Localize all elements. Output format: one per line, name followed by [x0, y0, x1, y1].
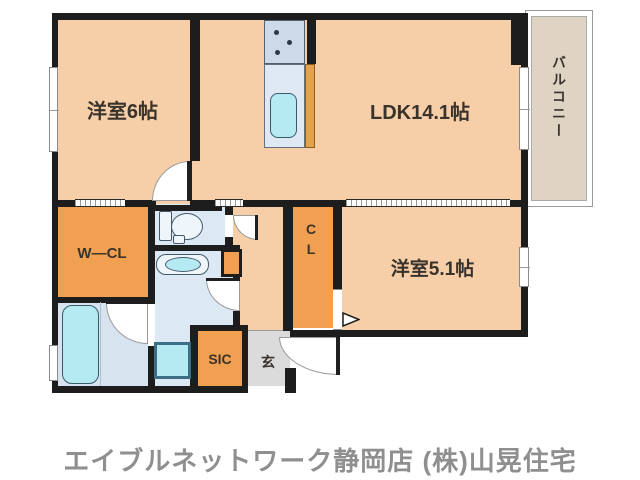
agency-caption: エイブルネットワーク静岡店 (株)山晃住宅 [0, 441, 640, 478]
door-swing-triangle [342, 312, 360, 327]
door-leaf [106, 301, 148, 304]
door-leaf [206, 278, 240, 281]
wall [190, 20, 200, 161]
sliding-door-corridor [215, 199, 243, 207]
wall [283, 200, 293, 331]
stove-burner-dot [274, 30, 279, 35]
wall [52, 386, 248, 393]
closet-door-opening [333, 289, 342, 330]
door-leaf [255, 215, 258, 240]
wall [190, 325, 248, 331]
wall [243, 200, 346, 207]
window [519, 67, 529, 150]
vanity-basin [165, 257, 201, 272]
kitchen-sink [270, 93, 297, 138]
wall [510, 200, 528, 207]
label-bedroom2: 洋室5.1帖 [345, 254, 520, 281]
bathroom-door-opening [148, 304, 155, 346]
label-walk-in-closet: W—CL [58, 245, 146, 262]
label-bedroom1: 洋室6帖 [55, 95, 190, 124]
wall [148, 200, 155, 304]
label-closet: CL [303, 221, 319, 261]
wall [511, 13, 528, 65]
door-leaf [336, 337, 340, 375]
toilet-door-opening [225, 215, 233, 237]
window [49, 345, 58, 381]
hall-storage [221, 249, 242, 277]
label-entrance: 玄 [248, 352, 288, 372]
floorplan: 洋室6帖 LDK14.1帖 洋室5.1帖 バルコニー W—CL CL SIC 玄… [0, 0, 640, 480]
washing-machine-pan [154, 342, 191, 379]
door-leaf [187, 161, 192, 201]
wall [307, 20, 316, 64]
sliding-door-wcl [75, 199, 125, 207]
sliding-door-bedroom2 [346, 199, 510, 207]
wall [290, 330, 528, 337]
label-ldk: LDK14.1帖 [330, 96, 510, 125]
kitchen-side-panel [305, 64, 315, 148]
wall [52, 200, 75, 207]
stove-burner-dot [287, 40, 292, 45]
wall [148, 205, 222, 211]
stove-burner-dot [275, 50, 280, 55]
label-balcony: バルコニー [549, 55, 569, 140]
bathtub [62, 305, 99, 384]
kitchen-stove [264, 20, 305, 64]
bath-divider-line [100, 302, 101, 386]
wall [333, 200, 342, 289]
window [519, 247, 529, 287]
label-shoe-closet: SIC [197, 351, 243, 367]
wall [52, 13, 528, 20]
toilet-seat-step [173, 235, 185, 244]
